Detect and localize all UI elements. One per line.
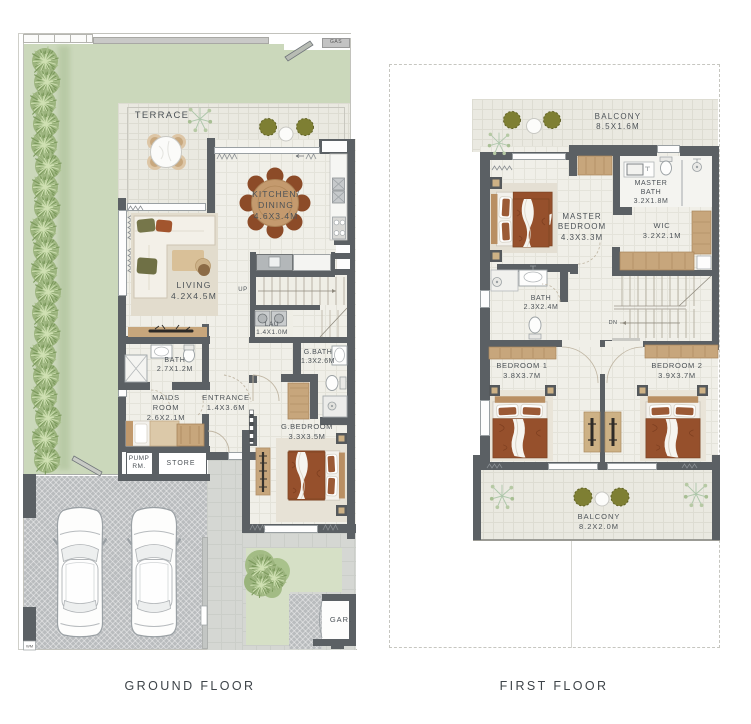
svg-text:WM: WM (26, 644, 33, 649)
